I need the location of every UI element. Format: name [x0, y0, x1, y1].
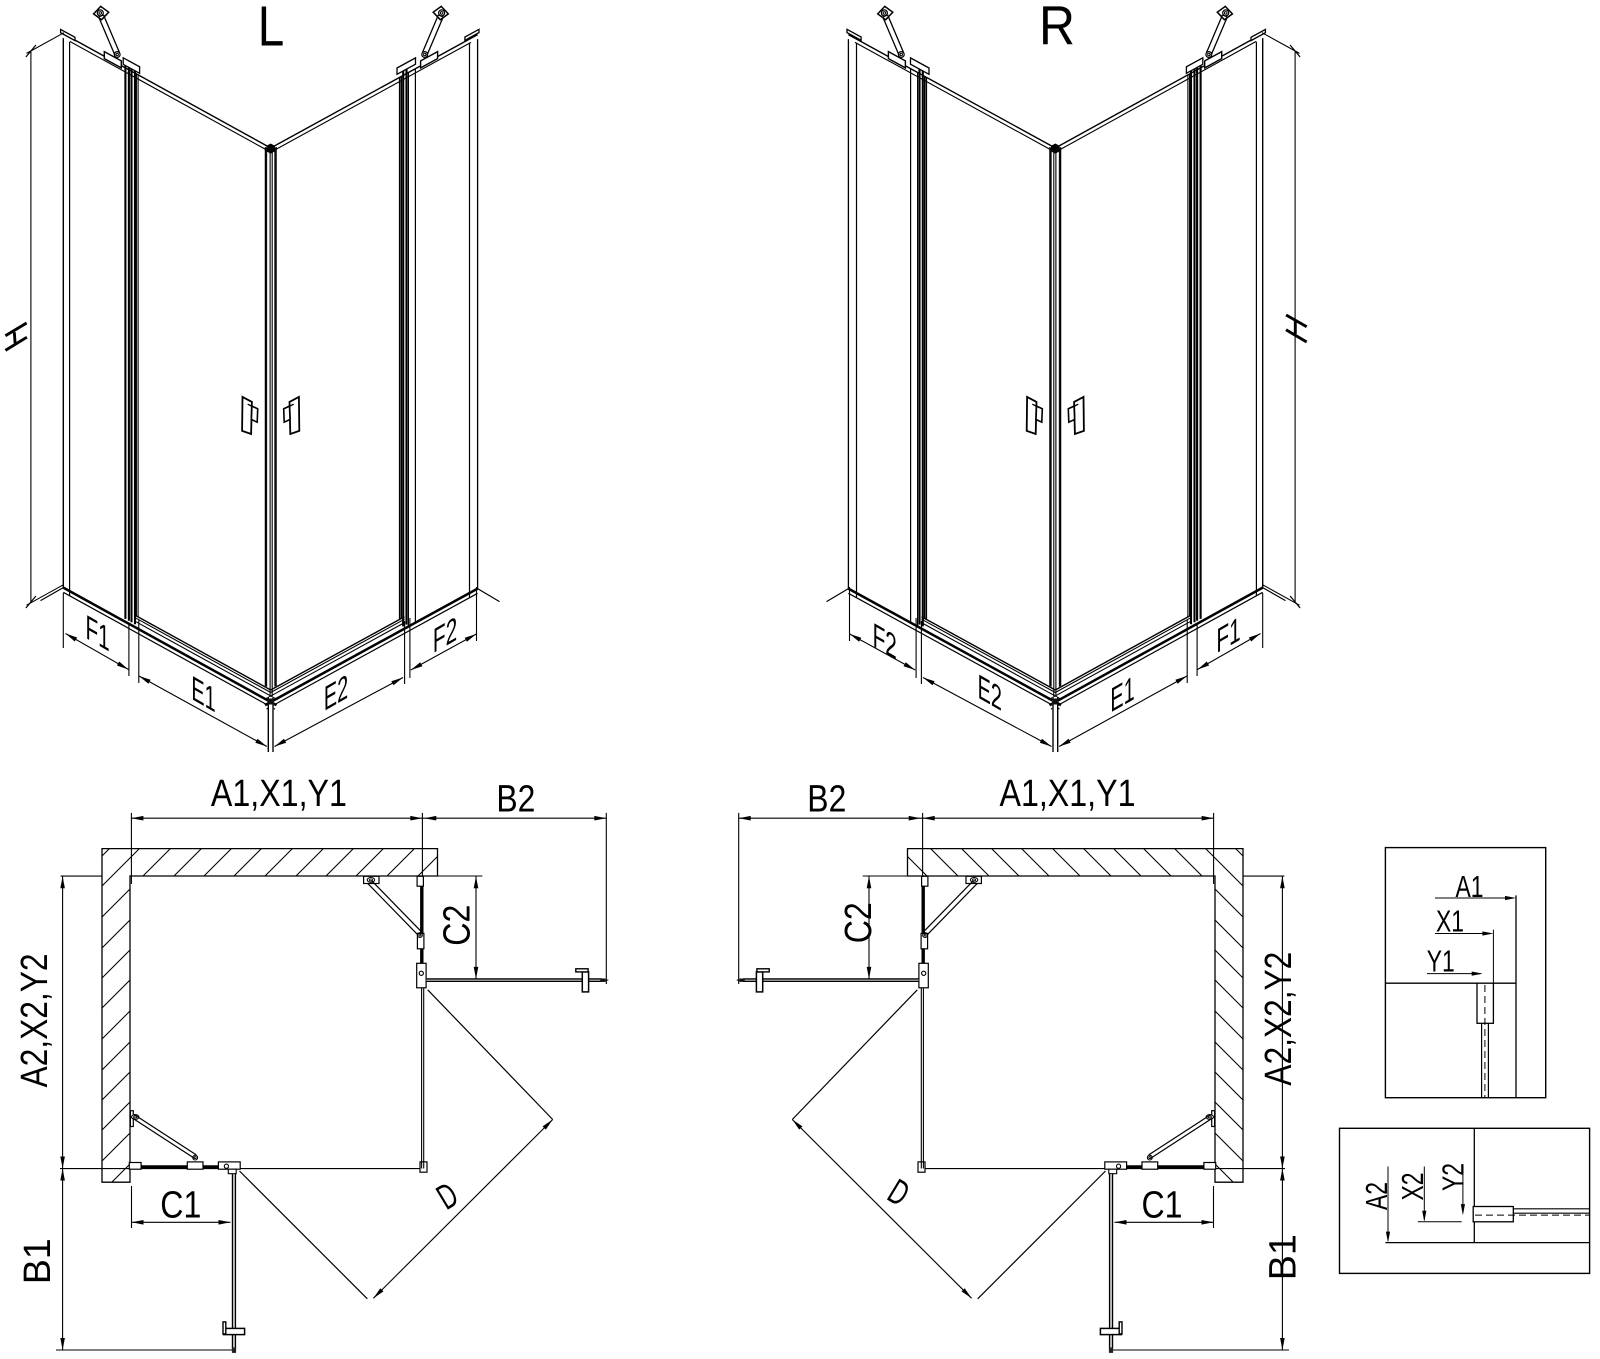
svg-text:B2: B2 [807, 779, 846, 821]
svg-text:A2: A2 [1359, 1182, 1394, 1210]
svg-text:X1: X1 [1436, 904, 1464, 939]
svg-text:R: R [1039, 0, 1075, 56]
svg-text:C1: C1 [1142, 1185, 1183, 1227]
svg-text:B1: B1 [1262, 1234, 1304, 1280]
svg-text:C2: C2 [437, 905, 479, 946]
svg-text:L: L [258, 0, 285, 59]
svg-text:B2: B2 [496, 779, 535, 821]
svg-text:A2,X2,Y2: A2,X2,Y2 [14, 954, 56, 1088]
svg-text:C1: C1 [160, 1185, 201, 1227]
svg-text:A2,X2,Y2: A2,X2,Y2 [1258, 952, 1300, 1086]
svg-text:A1,X1,Y1: A1,X1,Y1 [1000, 773, 1136, 815]
svg-text:Y1: Y1 [1427, 944, 1455, 979]
svg-text:X2: X2 [1395, 1173, 1430, 1201]
svg-text:Y2: Y2 [1435, 1163, 1470, 1191]
svg-text:C2: C2 [838, 902, 880, 943]
svg-text:B1: B1 [17, 1238, 59, 1284]
svg-text:A1: A1 [1456, 869, 1484, 904]
svg-text:A1,X1,Y1: A1,X1,Y1 [211, 773, 347, 815]
